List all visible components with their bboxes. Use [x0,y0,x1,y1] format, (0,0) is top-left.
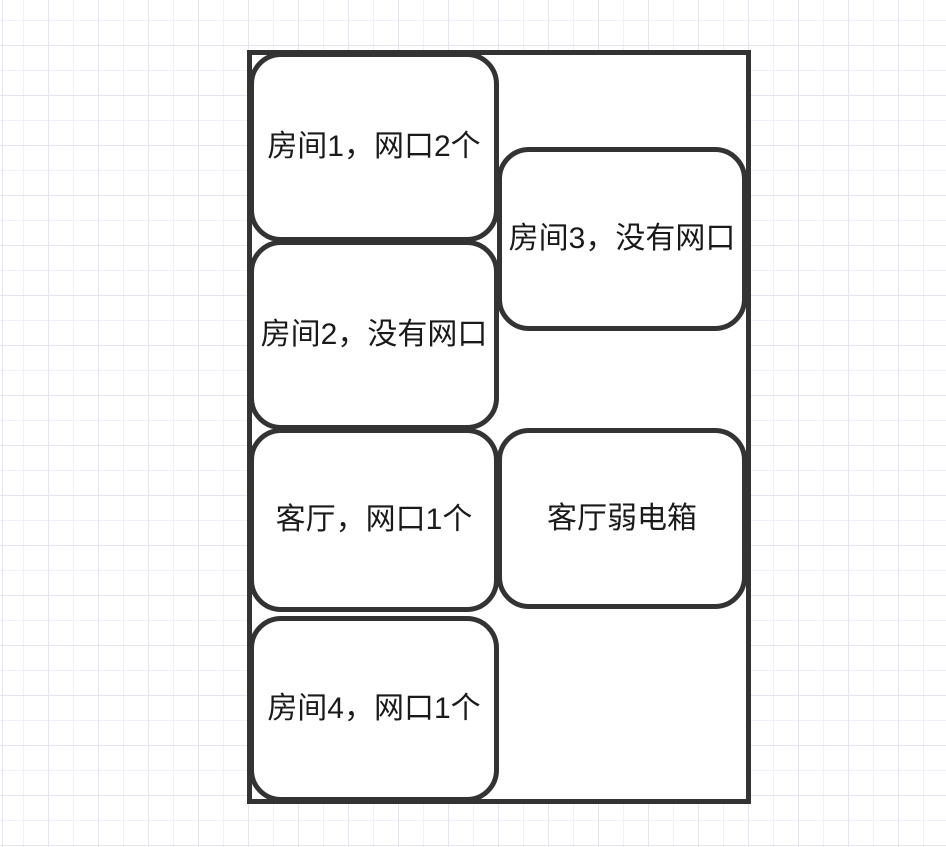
room3-label: 房间3，没有网口 [509,221,736,257]
shape-room2[interactable]: 房间2，没有网口 [249,240,499,430]
shape-room1[interactable]: 房间1，网口2个 [249,52,499,242]
diagram-canvas[interactable]: 房间1，网口2个 房间2，没有网口 房间3，没有网口 客厅，网口1个 客厅弱电箱… [0,0,946,847]
shape-living-room[interactable]: 客厅，网口1个 [249,428,499,612]
shape-room3[interactable]: 房间3，没有网口 [497,147,747,331]
room4-label: 房间4，网口1个 [267,691,480,727]
shape-weak-current-box[interactable]: 客厅弱电箱 [497,428,747,609]
room1-label: 房间1，网口2个 [267,129,480,165]
shape-room4[interactable]: 房间4，网口1个 [249,616,499,802]
living-room-label: 客厅，网口1个 [276,502,473,538]
room2-label: 房间2，没有网口 [261,317,488,353]
weak-current-box-label: 客厅弱电箱 [547,501,697,537]
